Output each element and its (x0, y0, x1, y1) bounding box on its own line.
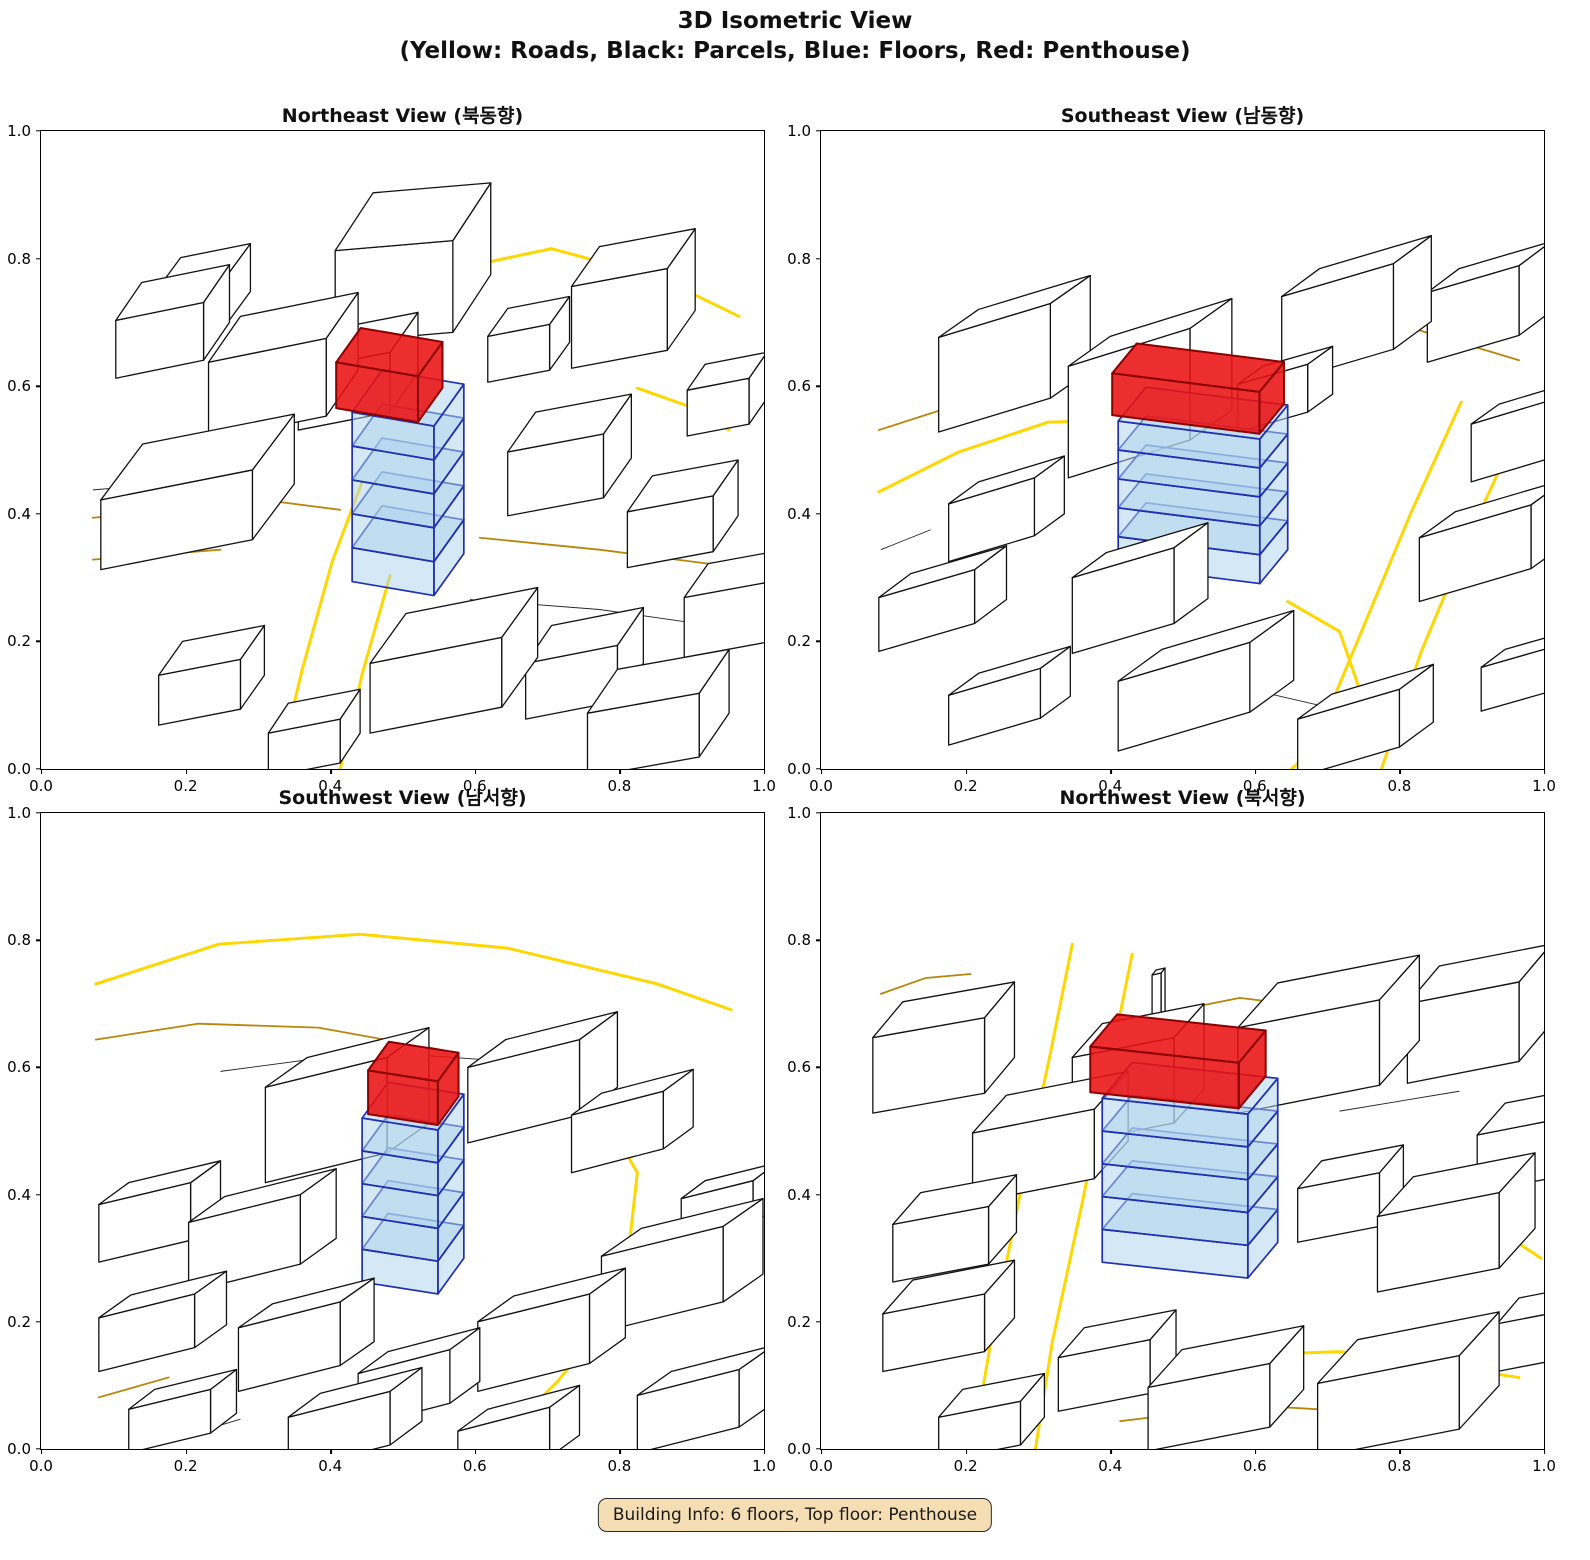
subplot-northeast: Northeast View (북동향) 0.00.20.40.60.81.0 … (40, 130, 765, 770)
penthouse (336, 328, 442, 422)
x-tick-label: 0.4 (318, 1449, 342, 1475)
highlight-building (336, 328, 464, 596)
y-tick-label: 0.4 (787, 505, 821, 523)
y-tick-label: 1.0 (7, 122, 41, 140)
figure-root: 3D Isometric View (Yellow: Roads, Black:… (0, 0, 1590, 1560)
x-tick-label: 0.4 (1098, 1449, 1122, 1475)
y-tick-label: 0.6 (787, 1058, 821, 1076)
building-info-badge: Building Info: 6 floors, Top floor: Pent… (598, 1498, 992, 1532)
y-tick-label: 0.4 (787, 1186, 821, 1204)
y-axis-ticks: 0.00.20.40.60.81.0 (0, 131, 41, 769)
y-axis-ticks: 0.00.20.40.60.81.0 (0, 813, 41, 1449)
highlight-building (1090, 1014, 1277, 1278)
x-tick-label: 0.2 (174, 1449, 198, 1475)
figure-subtitle: (Yellow: Roads, Black: Parcels, Blue: Fl… (0, 36, 1590, 66)
y-axis-ticks: 0.00.20.40.60.81.0 (775, 131, 821, 769)
y-tick-label: 0.8 (7, 250, 41, 268)
buildings-layer (99, 1012, 764, 1449)
figure-header: 3D Isometric View (Yellow: Roads, Black:… (0, 6, 1590, 66)
y-tick-label: 0.8 (7, 931, 41, 949)
x-tick-label: 0.8 (1387, 1449, 1411, 1475)
x-tick-label: 0.0 (809, 1449, 833, 1475)
y-tick-label: 0.6 (7, 1058, 41, 1076)
x-tick-label: 1.0 (1532, 1449, 1556, 1475)
subplot-northwest: Northwest View (북서향) 0.00.20.40.60.81.0 … (820, 812, 1545, 1450)
subplot-title-southwest: Southwest View (남서향) (41, 783, 764, 810)
figure-title: 3D Isometric View (0, 6, 1590, 36)
y-tick-label: 0.2 (7, 1313, 41, 1331)
scene-northeast-svg (41, 131, 764, 769)
scene-southwest-svg (41, 813, 764, 1449)
buildings-layer (879, 236, 1544, 769)
y-tick-label: 0.8 (787, 250, 821, 268)
subplot-title-northeast: Northeast View (북동향) (41, 101, 764, 128)
x-tick-label: 0.6 (463, 1449, 487, 1475)
highlight-building (362, 1042, 464, 1294)
x-tick-label: 0.8 (607, 1449, 631, 1475)
scene-southeast-svg (821, 131, 1544, 769)
y-tick-label: 0.2 (7, 632, 41, 650)
x-axis-ticks: 0.00.20.40.60.81.0 (821, 1449, 1544, 1475)
y-tick-label: 0.4 (7, 1186, 41, 1204)
buildings-layer (873, 944, 1544, 1449)
y-tick-label: 0.2 (787, 1313, 821, 1331)
subplot-title-southeast: Southeast View (남동향) (821, 101, 1544, 128)
x-tick-label: 1.0 (752, 1449, 776, 1475)
y-tick-label: 0.6 (7, 377, 41, 395)
subplot-southeast: Southeast View (남동향) 0.00.20.40.60.81.0 … (820, 130, 1545, 770)
penthouse (368, 1042, 458, 1125)
x-axis-ticks: 0.00.20.40.60.81.0 (41, 1449, 764, 1475)
y-tick-label: 0.2 (787, 632, 821, 650)
y-tick-label: 1.0 (787, 804, 821, 822)
x-tick-label: 0.2 (954, 1449, 978, 1475)
scene-northwest-svg (821, 813, 1544, 1449)
x-tick-label: 0.6 (1243, 1449, 1267, 1475)
y-tick-label: 1.0 (7, 804, 41, 822)
penthouse (1090, 1014, 1265, 1108)
x-tick-label: 0.0 (29, 1449, 53, 1475)
buildings-layer (101, 183, 764, 769)
y-tick-label: 0.8 (787, 931, 821, 949)
y-tick-label: 0.4 (7, 505, 41, 523)
y-axis-ticks: 0.00.20.40.60.81.0 (775, 813, 821, 1449)
y-tick-label: 0.6 (787, 377, 821, 395)
subplot-title-northwest: Northwest View (북서향) (821, 783, 1544, 810)
subplot-southwest: Southwest View (남서향) 0.00.20.40.60.81.0 … (40, 812, 765, 1450)
y-tick-label: 1.0 (787, 122, 821, 140)
